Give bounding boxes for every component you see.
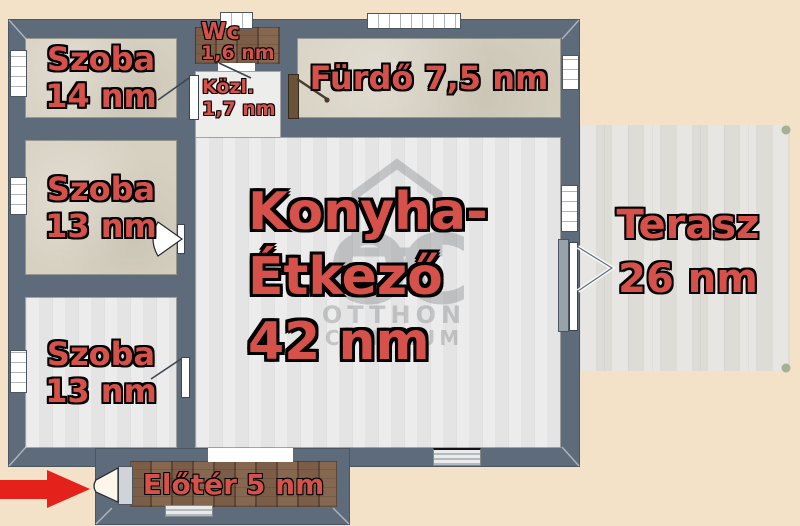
room-szoba14-label: Szoba 14 nm <box>25 38 177 118</box>
room-kozlekedo-label: Közl. 1,7 nm <box>202 76 282 120</box>
room-area: 5 nm <box>246 468 324 501</box>
room-area: 14 nm <box>45 78 157 115</box>
room-name: Szoba <box>47 336 155 373</box>
door-szoba13-middle-leaf <box>177 224 185 254</box>
room-area: 7,5 nm <box>424 59 548 97</box>
room-szoba13-bottom-label: Szoba 13 nm <box>25 297 177 448</box>
room-wc-label: Wc 1,6 nm <box>201 20 281 64</box>
room-szoba13-middle-label: Szoba 13 nm <box>25 140 177 275</box>
room-name: Fürdő <box>310 59 414 97</box>
room-area: 13 nm <box>45 373 157 410</box>
room-area: 1,6 nm <box>201 44 275 63</box>
room-name: Előtér <box>143 468 237 501</box>
window-furdo-top <box>367 13 461 29</box>
room-furdo-label: Fürdő 7,5 nm <box>297 38 561 118</box>
room-area: 13 nm <box>45 208 157 245</box>
room-terasz-label: Terasz 26 nm <box>586 196 790 308</box>
opening-konyha-eloter <box>208 448 293 462</box>
room-name: Terasz <box>617 198 760 252</box>
opening-wc-door <box>218 63 255 71</box>
door-terasz-leaf <box>569 242 578 331</box>
room-name: Szoba <box>47 171 155 208</box>
room-area: 1,7 nm <box>202 98 276 120</box>
room-name-line2: Étkező <box>248 245 443 310</box>
window-furdo-right <box>562 55 579 90</box>
room-name: Közl. <box>202 76 254 98</box>
room-konyha-label: Konyha- Étkező 42 nm <box>248 180 568 375</box>
room-name: Wc <box>201 20 240 44</box>
entrance-arrow-icon <box>0 470 90 508</box>
floor-plan: OC OTTHON CENTRUM <box>0 0 800 526</box>
room-eloter-label: Előtér 5 nm <box>130 462 337 506</box>
room-name-line1: Konyha- <box>248 180 488 245</box>
room-name: Szoba <box>47 41 155 78</box>
steps-konyha-garden <box>433 448 481 466</box>
steps-eloter <box>165 505 213 517</box>
door-szoba13-bottom-leaf <box>181 357 190 398</box>
room-area: 42 nm <box>248 310 430 375</box>
room-area: 26 nm <box>618 252 758 306</box>
door-szoba14-leaf <box>189 75 199 120</box>
